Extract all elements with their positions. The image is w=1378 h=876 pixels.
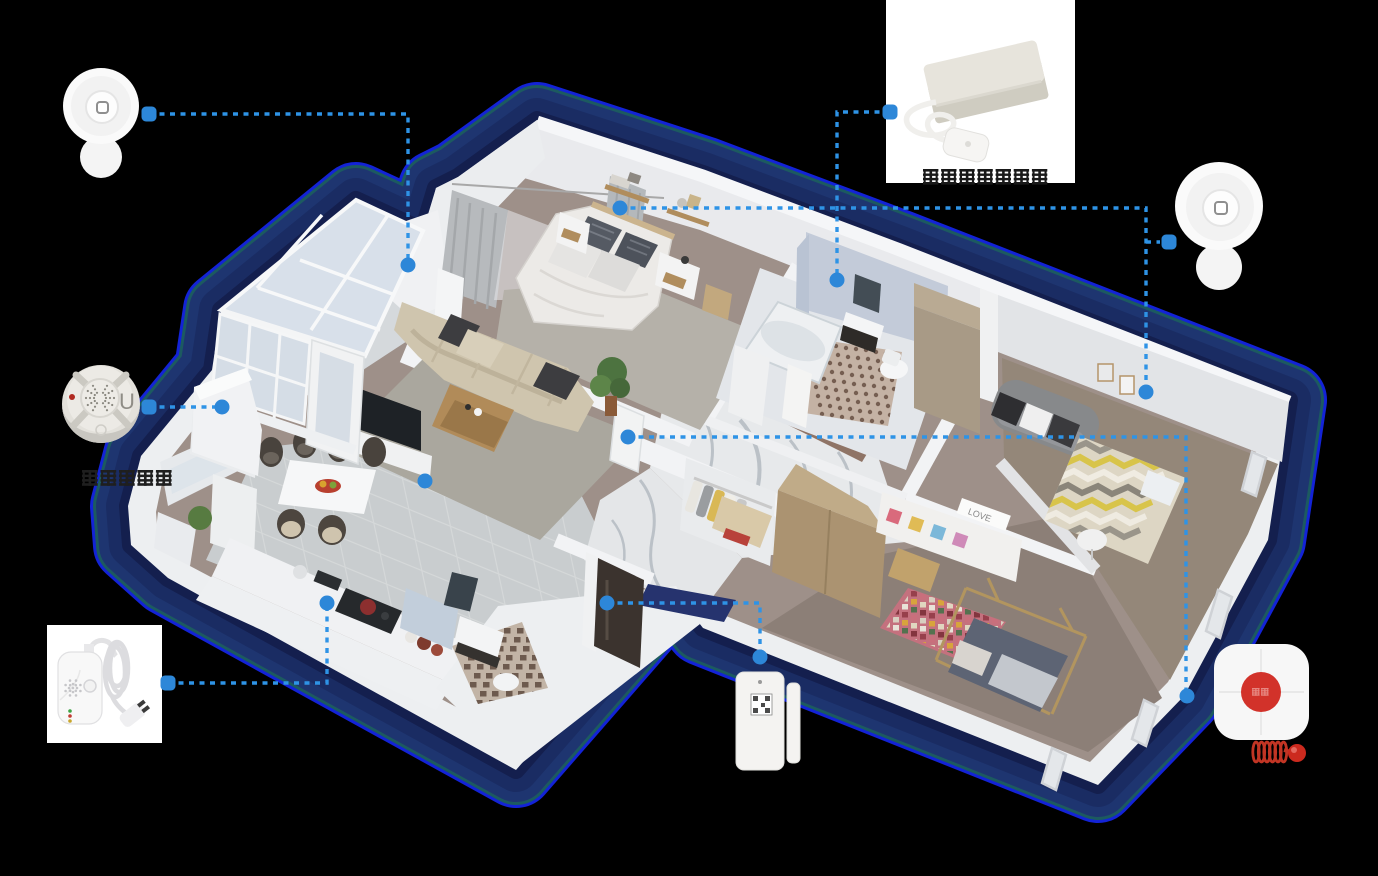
svg-text:U: U <box>119 389 135 414</box>
